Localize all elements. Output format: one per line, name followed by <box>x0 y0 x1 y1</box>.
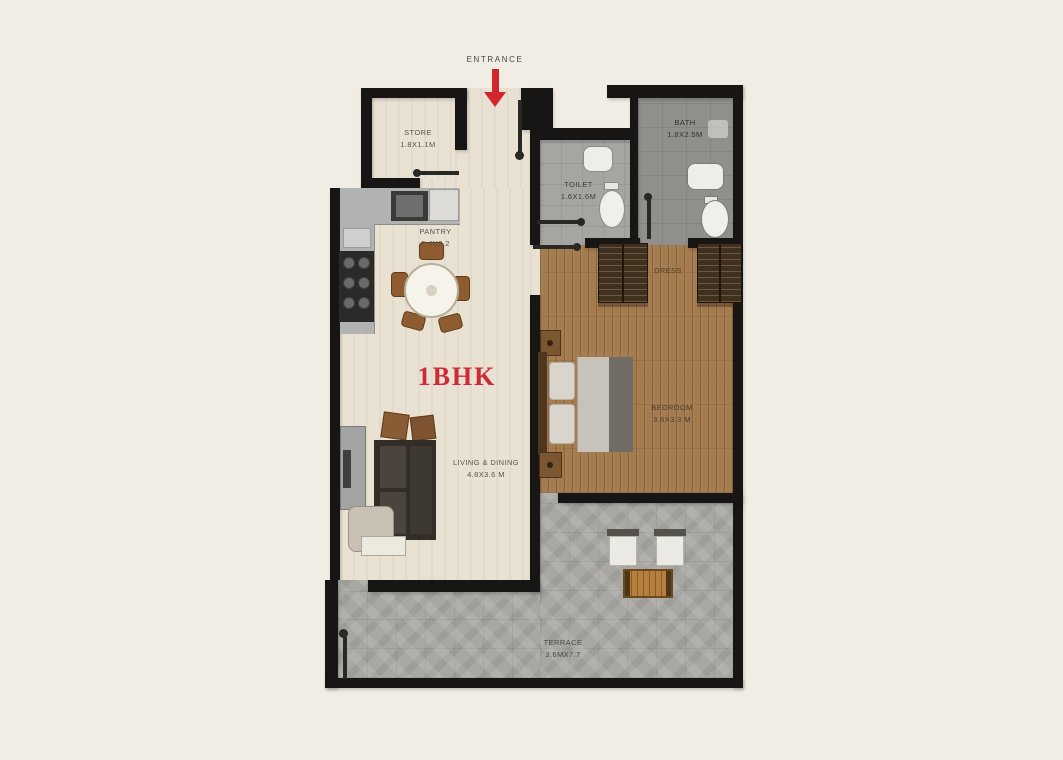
dress-label: DRESS <box>648 265 688 277</box>
bath-door-hinge <box>644 193 652 201</box>
wall <box>521 88 553 130</box>
oven-door <box>396 195 423 217</box>
terrace-door-threshold <box>338 580 368 592</box>
wall <box>361 88 467 98</box>
wardrobe-shadow <box>697 303 742 307</box>
terrace-label: TERRACE 3.6MX7.7 <box>527 637 599 660</box>
terrace-table-edge <box>625 571 630 596</box>
lamp <box>547 462 553 468</box>
room-name: BATH <box>650 117 720 129</box>
room-dims: 3.6X3.3 M <box>627 414 717 426</box>
wardrobe-shadow <box>598 303 648 307</box>
entrance-arrow-icon <box>484 92 506 107</box>
room-name: TOILET <box>546 179 611 191</box>
terrace-floor-left <box>338 592 540 678</box>
wall <box>455 88 467 150</box>
burner <box>343 277 355 289</box>
bed-duvet <box>577 357 610 452</box>
washbasin <box>583 146 613 172</box>
store-label: STORE 1.8X1.1M <box>383 127 453 150</box>
room-name: LIVING & DINING <box>430 457 542 469</box>
wall <box>330 188 340 580</box>
terrace-chair <box>609 536 637 566</box>
store-door-leaf <box>417 171 459 175</box>
bedroom-door-threshold <box>530 245 540 295</box>
burner <box>343 257 355 269</box>
store-door-threshold <box>418 178 455 188</box>
tv <box>343 450 351 488</box>
terrace-table-edge <box>666 571 671 596</box>
room-dims: 2.4X2.2 <box>403 238 468 250</box>
bath-door-leaf <box>647 197 651 239</box>
living-dining-label: LIVING & DINING 4.8X3.6 M <box>430 457 542 480</box>
room-name: PANTRY <box>403 226 468 238</box>
entrance-door-leaf <box>518 100 522 154</box>
sofa-chaise <box>410 446 432 534</box>
wall <box>530 130 540 245</box>
burner <box>358 297 370 309</box>
room-name: STORE <box>383 127 453 139</box>
wall <box>607 85 743 98</box>
room-name: TERRACE <box>527 637 599 649</box>
pillow <box>549 404 575 444</box>
floor-plan-canvas: ENTRANCE STORE 1.8X1.1M PANTRY 2.4X2.2 T… <box>0 0 1063 760</box>
sofa-cushion <box>380 446 406 488</box>
unit-type-title: 1BHK <box>404 362 510 392</box>
entrance-label: ENTRANCE <box>452 54 538 66</box>
store-door-hinge <box>413 169 421 177</box>
wall <box>368 580 540 592</box>
terrace-chair-back <box>607 529 639 536</box>
coffee-table <box>361 536 406 556</box>
room-name: DRESS <box>648 265 688 277</box>
pantry-label: PANTRY 2.4X2.2 <box>403 226 468 249</box>
toilet-door-hinge <box>577 218 585 226</box>
room-dims: 3.6MX7.7 <box>527 649 599 661</box>
ottoman <box>380 411 409 440</box>
bath-label: BATH 1.8X2.5M <box>650 117 720 140</box>
ottoman <box>410 415 437 442</box>
wall <box>325 678 743 688</box>
burner <box>358 257 370 269</box>
bedroom-door-hinge <box>573 243 581 251</box>
washbasin <box>687 163 724 190</box>
wall <box>361 88 372 188</box>
room-dims: 1.8X1.1M <box>383 139 453 151</box>
entrance-door-hinge <box>515 151 524 160</box>
bedroom-label: BEDROOM 3.6X3.3 M <box>627 402 717 425</box>
entrance-arrow-icon <box>492 69 499 94</box>
wall <box>558 493 743 503</box>
wardrobe-divider <box>622 243 624 303</box>
toilet-wc <box>701 200 729 238</box>
wardrobe-divider <box>719 243 721 303</box>
room-dims: 1.6X1.6M <box>546 191 611 203</box>
terrace-door-hinge <box>339 629 348 638</box>
kitchen-sink <box>343 228 371 248</box>
terrace-door-leaf <box>343 637 347 679</box>
pillow <box>549 362 575 400</box>
burner <box>358 277 370 289</box>
lamp <box>547 340 553 346</box>
dining-table-center <box>426 285 437 296</box>
room-name: BEDROOM <box>627 402 717 414</box>
fridge <box>429 189 459 221</box>
toilet-label: TOILET 1.6X1.6M <box>546 179 611 202</box>
terrace-chair-back <box>654 529 686 536</box>
room-dims: 1.8X2.5M <box>650 129 720 141</box>
wall <box>361 178 420 188</box>
wall <box>630 98 638 245</box>
terrace-chair <box>656 536 684 566</box>
bedroom-door-leaf <box>533 245 578 249</box>
burner <box>343 297 355 309</box>
wall <box>540 128 632 140</box>
wall <box>733 85 743 688</box>
bed-headboard <box>538 352 547 455</box>
wall <box>325 580 338 688</box>
room-dims: 4.8X3.6 M <box>430 469 542 481</box>
